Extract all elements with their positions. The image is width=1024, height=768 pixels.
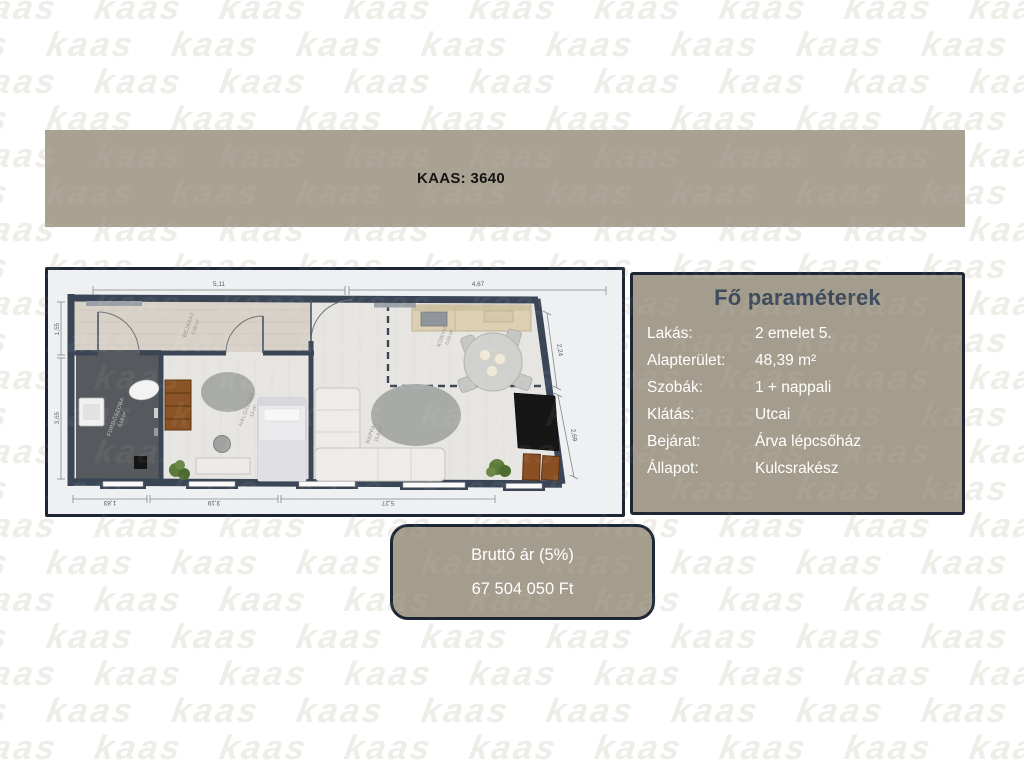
svg-text:5,11: 5,11	[213, 281, 225, 288]
param-value: 1 + nappali	[755, 379, 948, 397]
param-row-szobak: Szobák: 1 + nappali	[647, 379, 948, 397]
svg-text:2,69: 2,69	[569, 428, 578, 442]
param-row-allapot: Állapot: Kulcsrakész	[647, 460, 948, 478]
listing-id: KAAS: 3640	[417, 170, 505, 187]
param-value: Utcai	[755, 406, 948, 424]
param-value: 2 emelet 5.	[755, 325, 948, 343]
param-row-lakas: Lakás: 2 emelet 5.	[647, 325, 948, 343]
param-row-alapterulet: Alapterület: 48,39 m²	[647, 352, 948, 370]
window-lintel-left	[86, 301, 142, 306]
param-value: 48,39 m²	[755, 352, 948, 370]
kitchen-counter	[412, 305, 531, 331]
param-value: Kulcsrakész	[755, 460, 948, 478]
svg-text:3,19: 3,19	[207, 499, 220, 506]
param-label: Klátás:	[647, 406, 755, 424]
parameters-panel: Fő paraméterek Lakás: 2 emelet 5. Alapte…	[630, 272, 965, 515]
param-row-bejarat: Bejárat: Árva lépcsőház	[647, 433, 948, 451]
svg-text:1,55: 1,55	[54, 322, 61, 335]
floorplan-card: BEJÁRAT 6,08 m² FÜRDŐSZOBA 6,58 m² HÁLÓS…	[45, 267, 625, 517]
living-rug	[371, 384, 461, 446]
price-box: Bruttó ár (5%) 67 504 050 Ft	[390, 524, 655, 620]
tv-cabinet	[514, 393, 559, 451]
window-lintel-living	[374, 303, 416, 308]
desk-chair	[214, 436, 231, 453]
param-row-klatas: Klátás: Utcai	[647, 406, 948, 424]
param-label: Alapterület:	[647, 352, 755, 370]
svg-text:5,27: 5,27	[381, 499, 394, 506]
desk	[196, 458, 250, 474]
parameters-title: Fő paraméterek	[647, 285, 948, 311]
svg-text:1,83: 1,83	[103, 499, 116, 506]
price-value: 67 504 050 Ft	[472, 580, 574, 599]
svg-text:4,67: 4,67	[472, 281, 485, 288]
price-label: Bruttó ár (5%)	[471, 546, 574, 565]
param-value: Árva lépcsőház	[755, 433, 948, 451]
param-label: Szobák:	[647, 379, 755, 397]
bed	[258, 398, 306, 481]
svg-text:3,65: 3,65	[54, 411, 61, 424]
svg-text:2,24: 2,24	[555, 343, 564, 357]
header-bar: KAAS: 3640	[45, 130, 965, 227]
floorplan-drawing: BEJÁRAT 6,08 m² FÜRDŐSZOBA 6,58 m² HÁLÓS…	[48, 270, 622, 514]
wardrobe	[165, 380, 191, 430]
param-label: Bejárat:	[647, 433, 755, 451]
param-label: Lakás:	[647, 325, 755, 343]
param-label: Állapot:	[647, 460, 755, 478]
page: kaas kaas kaas kaas kaas kaas kaas kaas …	[0, 0, 1024, 768]
